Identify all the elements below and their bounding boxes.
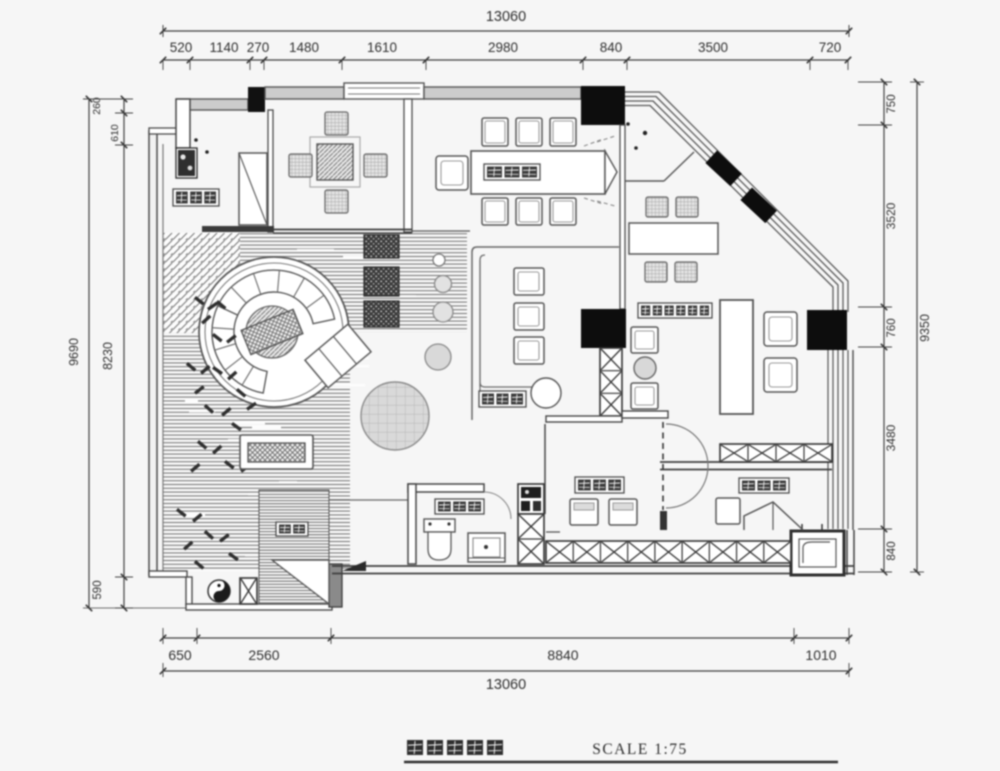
svg-text:260: 260 [91,97,103,115]
svg-text:9350: 9350 [918,314,932,342]
svg-text:2560: 2560 [248,647,279,663]
svg-text:1140: 1140 [209,40,238,55]
svg-text:SCALE 1:75: SCALE 1:75 [592,741,688,758]
svg-text:760: 760 [886,318,898,337]
svg-text:1480: 1480 [289,40,319,55]
svg-text:650: 650 [168,647,192,663]
svg-text:3500: 3500 [698,40,728,55]
svg-text:750: 750 [886,94,898,113]
svg-text:520: 520 [170,40,193,55]
svg-text:3520: 3520 [884,202,898,229]
svg-text:1610: 1610 [367,40,397,55]
svg-text:8840: 8840 [547,647,578,663]
svg-text:3480: 3480 [884,424,898,451]
svg-text:2980: 2980 [488,40,518,55]
svg-text:590: 590 [92,580,104,599]
svg-text:9690: 9690 [67,338,81,366]
svg-text:13060: 13060 [486,677,526,693]
svg-text:720: 720 [819,40,842,55]
svg-text:840: 840 [600,40,623,55]
svg-text:610: 610 [109,124,121,142]
svg-text:8230: 8230 [101,342,115,370]
svg-text:840: 840 [886,541,898,560]
svg-text:13060: 13060 [486,9,526,25]
svg-text:1010: 1010 [805,647,836,663]
svg-text:270: 270 [247,40,270,55]
